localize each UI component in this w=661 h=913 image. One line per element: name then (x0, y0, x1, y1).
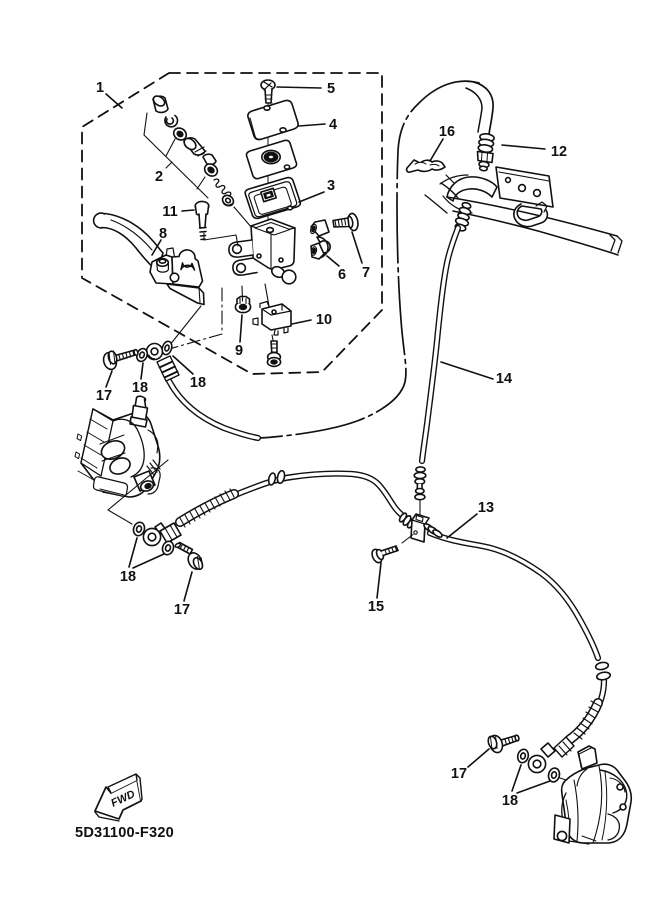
svg-text:18: 18 (120, 569, 136, 585)
svg-text:2: 2 (155, 169, 163, 185)
svg-text:17: 17 (174, 602, 190, 618)
svg-text:9: 9 (235, 343, 243, 359)
svg-text:18: 18 (132, 380, 148, 396)
svg-text:1: 1 (96, 80, 104, 96)
svg-text:6: 6 (338, 267, 346, 283)
svg-text:17: 17 (96, 388, 112, 404)
svg-text:10: 10 (316, 312, 332, 328)
svg-text:5D31100-F320: 5D31100-F320 (75, 825, 174, 841)
svg-text:15: 15 (368, 599, 384, 615)
svg-text:12: 12 (551, 144, 567, 160)
svg-text:8: 8 (159, 226, 167, 242)
svg-text:13: 13 (478, 500, 494, 516)
svg-text:5: 5 (327, 81, 335, 97)
svg-text:11: 11 (162, 204, 177, 220)
svg-text:17: 17 (451, 766, 467, 782)
svg-text:18: 18 (190, 375, 206, 391)
svg-text:18: 18 (502, 793, 518, 809)
svg-text:16: 16 (439, 124, 455, 140)
svg-text:3: 3 (327, 178, 335, 194)
svg-text:7: 7 (362, 265, 370, 281)
svg-text:14: 14 (496, 371, 512, 387)
svg-text:4: 4 (329, 117, 337, 133)
